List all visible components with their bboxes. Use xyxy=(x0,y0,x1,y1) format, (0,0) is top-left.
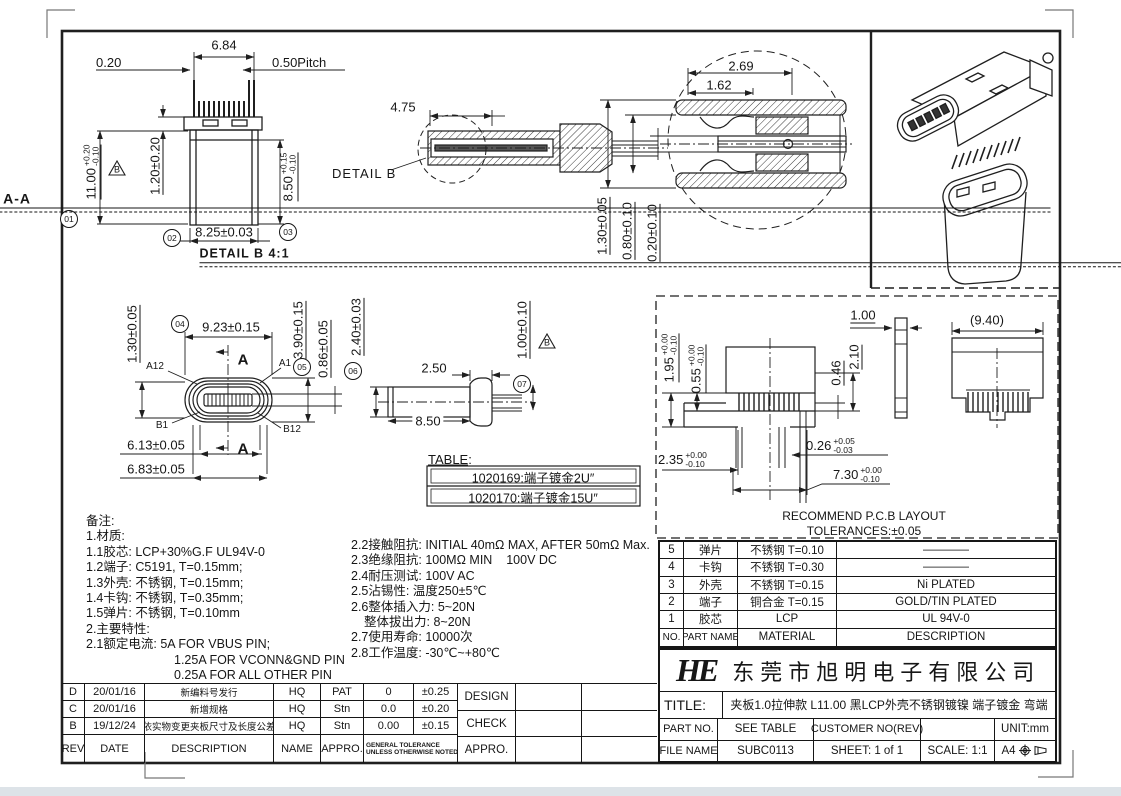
dim-pcb-046: 0.46 xyxy=(830,360,845,385)
dim-side-240: 2.40±0.03 xyxy=(350,298,365,356)
note-line: 备注: xyxy=(86,514,345,529)
rev-cell: ±0.25 xyxy=(414,684,457,701)
balloon-02: 02 xyxy=(163,229,181,247)
parts-cell: ———— xyxy=(837,542,1055,559)
dim-front-body-width: 8.25±0.03 xyxy=(195,226,253,239)
parts-cell: 2 xyxy=(660,594,684,611)
rev-cell: HQ xyxy=(274,701,321,718)
plating-table-row: 1020170:端子镀金15U″ xyxy=(468,488,598,507)
note-line: 2.6整体插入力: 5~20N xyxy=(351,600,650,615)
balloon-03: 03 xyxy=(279,223,297,241)
note-line: 1.4卡钩: 不锈钢, T=0.35mm; xyxy=(86,591,345,606)
parts-cell: 卡钩 xyxy=(684,559,738,576)
dim-front-pitch: 0.50Pitch xyxy=(272,56,326,69)
detail-b-callout: DETAIL B xyxy=(332,167,396,180)
note-line: 整体拔出力: 8~20N xyxy=(351,615,650,630)
dim-face-683: 6.83±0.05 xyxy=(127,463,185,476)
parts-header-part: PART NAME xyxy=(684,629,738,646)
design-label: DESIGN xyxy=(458,684,516,711)
check-sign-cell xyxy=(582,711,657,737)
rev-cell: 0.00 xyxy=(364,718,414,735)
note-line: 2.1额定电流: 5A FOR VBUS PIN; xyxy=(86,637,345,652)
parts-cell: 1 xyxy=(660,611,684,628)
datum-b-side: B xyxy=(544,339,550,348)
company-row: HE 东莞市旭明电子有限公司 xyxy=(660,650,1055,692)
parts-cell: 外壳 xyxy=(684,577,738,594)
file-name-row: FILE NAME SUBC0113 SHEET: 1 of 1 SCALE: … xyxy=(660,740,1055,761)
appro-sign-cell xyxy=(582,737,657,763)
sign-block: DESIGN CHECK APPRO. xyxy=(458,683,657,763)
dim-pcb-100: 1.00 xyxy=(850,309,875,324)
design-sign-cell xyxy=(582,684,657,711)
parts-cell: 不锈钢 T=0.10 xyxy=(738,542,837,559)
unit-label: UNIT:mm xyxy=(995,718,1055,740)
part-no-label: PART NO. xyxy=(660,718,718,740)
dim-detail-162: 1.62 xyxy=(706,79,731,92)
balloon-01: 01 xyxy=(60,210,78,228)
note-line: 2.5沾锡性: 温度250±5℃ xyxy=(351,584,650,599)
dim-detail-130: 1.30±0.05 xyxy=(596,197,611,255)
dim-detail-269: 2.69 xyxy=(728,60,753,73)
pcb-note-1: RECOMMEND P.C.B LAYOUT xyxy=(782,510,946,522)
rev-cell: 依实物变更夹板尺寸及长度公差 xyxy=(145,718,274,735)
company-logo: HE xyxy=(676,652,716,689)
plating-table-row: 1020169:端子镀金2U″ xyxy=(472,468,595,487)
rev-cell: 0 xyxy=(364,684,414,701)
paper-size: A4 xyxy=(995,740,1055,761)
plating-table-label: TABLE: xyxy=(428,453,472,466)
parts-cell: 弹片 xyxy=(684,542,738,559)
parts-cell: 5 xyxy=(660,542,684,559)
drawing-title: 夹板1.0拉伸款 L11.00 黑LCP外壳不锈钢镀镍 端子镀金 弯端 xyxy=(723,691,1055,718)
rev-cell: 20/01/16 xyxy=(85,701,145,718)
parts-cell: 不锈钢 T=0.15 xyxy=(738,577,837,594)
datum-b-front: B xyxy=(114,166,120,175)
dim-pcb-055: 0.55+0.00-0.10 xyxy=(688,345,707,394)
parts-cell: 4 xyxy=(660,559,684,576)
rev-header-rev: REV xyxy=(62,735,85,763)
design-name-cell xyxy=(516,684,582,711)
balloon-07: 07 xyxy=(513,375,531,393)
rev-cell: ±0.15 xyxy=(414,718,457,735)
parts-cell: 铜合金 T=0.15 xyxy=(738,594,837,611)
dim-side-250: 2.50 xyxy=(421,362,446,375)
note-line: 2.3绝缘阻抗: 100MΩ MIN 100V DC xyxy=(351,553,650,568)
note-line: 1.材质: xyxy=(86,529,345,544)
tolerance-note-line2: UNLESS OTHERWISE NOTED xyxy=(366,749,457,756)
dim-front-flange: 1.20±0.20 xyxy=(149,137,164,195)
rev-cell: PAT xyxy=(321,684,364,701)
parts-header-desc: DESCRIPTION xyxy=(837,629,1055,646)
dim-pcb-195: 1.95+0.00-0.10 xyxy=(661,334,680,383)
view-front xyxy=(96,52,345,243)
dim-pcb-940: (9.40) xyxy=(970,314,1004,327)
title-label: TITLE: xyxy=(660,691,723,718)
dim-face-130: 1.30±0.05 xyxy=(126,305,141,363)
dim-face-086: 0.86±0.05 xyxy=(317,320,332,378)
note-line: 2.8工作温度: -30℃~+80℃ xyxy=(351,646,650,661)
appro-name-cell xyxy=(516,737,582,763)
first-angle-projection-icon xyxy=(1019,744,1049,757)
appro-label: APPRO. xyxy=(458,737,516,763)
section-aa-label: SECTION A-A xyxy=(0,192,1051,209)
note-line: 1.25A FOR VCONN&GND PIN xyxy=(86,653,345,668)
sheet-value: SHEET: 1 of 1 xyxy=(814,740,921,761)
dim-face-923: 9.23±0.15 xyxy=(202,321,260,334)
parts-header-no: NO. xyxy=(660,629,684,646)
balloon-06: 06 xyxy=(344,362,362,380)
rev-header-name: NAME xyxy=(274,735,321,763)
pin-label-b1: B1 xyxy=(156,421,168,431)
rev-cell: 20/01/16 xyxy=(85,684,145,701)
detail-b-label: DETAIL B 4:1 xyxy=(200,247,1121,263)
note-line: 1.2端子: C5191, T=0.15mm; xyxy=(86,560,345,575)
rev-header-desc: DESCRIPTION xyxy=(145,735,274,763)
rev-cell: Stn xyxy=(321,718,364,735)
parts-cell: LCP xyxy=(738,611,837,628)
pin-label-a1: A1 xyxy=(279,359,291,369)
tolerance-note-line1: GENERAL TOLERANCE xyxy=(366,742,440,749)
title-row: TITLE: 夹板1.0拉伸款 L11.00 黑LCP外壳不锈钢镀镍 端子镀金 … xyxy=(660,691,1055,719)
file-name-value: SUBC0113 xyxy=(718,740,814,761)
pin-label-b12: B12 xyxy=(283,425,301,435)
parts-cell: UL 94V-0 xyxy=(837,611,1055,628)
rev-cell: HQ xyxy=(274,718,321,735)
part-no-row: PART NO. SEE TABLE CUSTOMER NO(REV) UNIT… xyxy=(660,718,1055,741)
dim-pcb-730: 7.30+0.00-0.10 xyxy=(833,466,882,483)
rev-cell: HQ xyxy=(274,684,321,701)
customer-no-label: CUSTOMER NO(REV) xyxy=(814,718,921,740)
scale-value: SCALE: 1:1 xyxy=(921,740,995,761)
rev-cell: D xyxy=(62,684,85,701)
rev-cell: B xyxy=(62,718,85,735)
title-block: HE 东莞市旭明电子有限公司 TITLE: 夹板1.0拉伸款 L11.00 黑L… xyxy=(658,648,1057,763)
notes-left: 备注: 1.材质: 1.1胶芯: LCP+30%G.F UL94V-0 1.2端… xyxy=(86,514,345,683)
dim-front-gap: 0.20 xyxy=(96,56,121,69)
parts-cell: 端子 xyxy=(684,594,738,611)
part-no-value: SEE TABLE xyxy=(718,718,814,740)
section-mark-a-bottom: A xyxy=(238,442,249,457)
dim-face-390: 3.90±0.15 xyxy=(292,301,307,359)
parts-cell: 3 xyxy=(660,577,684,594)
note-line: 2.2接触阻抗: INITIAL 40mΩ MAX, AFTER 50mΩ Ma… xyxy=(351,538,650,553)
note-line: 0.25A FOR ALL OTHER PIN xyxy=(86,668,345,683)
note-line: 1.5弹片: 不锈钢, T=0.10mm xyxy=(86,606,345,621)
rev-header-date: DATE xyxy=(85,735,145,763)
dim-front-width: 6.84 xyxy=(211,39,236,52)
iso-view-top xyxy=(893,52,1053,146)
bottom-bar xyxy=(0,787,1121,796)
rev-cell: 新编料号发行 xyxy=(145,684,274,701)
section-mark-a-top: A xyxy=(238,353,249,368)
customer-no-value xyxy=(921,718,995,740)
pcb-note-2: TOLERANCES:±0.05 xyxy=(807,525,921,537)
rev-cell: 新增规格 xyxy=(145,701,274,718)
dim-pcb-235: 2.35+0.00-0.10 xyxy=(658,451,707,468)
note-line: 2.主要特性: xyxy=(86,622,345,637)
balloon-04: 04 xyxy=(171,315,189,333)
note-line: 1.1胶芯: LCP+30%G.F UL94V-0 xyxy=(86,545,345,560)
note-line: 2.7使用寿命: 10000次 xyxy=(351,630,650,645)
rev-header-appro: APPRO. xyxy=(321,735,364,763)
dim-pcb-210: 2.10 xyxy=(848,344,863,369)
note-line: 1.3外壳: 不锈钢, T=0.15mm; xyxy=(86,576,345,591)
drawing-sheet: 6.84 0.20 0.50Pitch 11.00+0.20-0.10 1.20… xyxy=(0,0,1121,796)
paper-size-label: A4 xyxy=(1001,745,1015,757)
dim-pcb-026: 0.26+0.05-0.03 xyxy=(806,437,855,454)
parts-cell: Ni PLATED xyxy=(837,577,1055,594)
rev-general-tolerance-note: GENERAL TOLERANCE UNLESS OTHERWISE NOTED xyxy=(364,735,457,763)
parts-header-material: MATERIAL xyxy=(738,629,837,646)
dim-face-613: 6.13±0.05 xyxy=(127,439,185,452)
company-name: 东莞市旭明电子有限公司 xyxy=(732,655,1040,687)
note-line: 2.4耐压测试: 100V AC xyxy=(351,569,650,584)
dim-side-100: 1.00±0.10 xyxy=(516,301,531,359)
view-section-aa xyxy=(391,110,668,183)
parts-table: 5 弹片 不锈钢 T=0.10 ———— 4 卡钩 不锈钢 T=0.30 ———… xyxy=(658,540,1057,648)
parts-cell: GOLD/TIN PLATED xyxy=(837,594,1055,611)
rev-cell: C xyxy=(62,701,85,718)
revision-table: D 20/01/16 新编料号发行 HQ PAT 0 ±0.25 C 20/01… xyxy=(62,683,458,763)
parts-cell: ———— xyxy=(837,559,1055,576)
dim-side-850: 8.50 xyxy=(412,415,443,428)
view-face xyxy=(120,332,342,478)
parts-cell: 胶芯 xyxy=(684,611,738,628)
parts-cell: 不锈钢 T=0.30 xyxy=(738,559,837,576)
notes-right: 2.2接触阻抗: INITIAL 40mΩ MAX, AFTER 50mΩ Ma… xyxy=(351,538,650,661)
pin-label-a12: A12 xyxy=(146,362,164,372)
balloon-05: 05 xyxy=(293,358,311,376)
rev-cell: 0.0 xyxy=(364,701,414,718)
rev-cell: 19/12/24 xyxy=(85,718,145,735)
check-name-cell xyxy=(516,711,582,737)
check-label: CHECK xyxy=(458,711,516,737)
dim-section-depth: 4.75 xyxy=(390,101,415,114)
file-name-label: FILE NAME xyxy=(660,740,718,761)
rev-cell: ±0.20 xyxy=(414,701,457,718)
rev-cell: Stn xyxy=(321,701,364,718)
